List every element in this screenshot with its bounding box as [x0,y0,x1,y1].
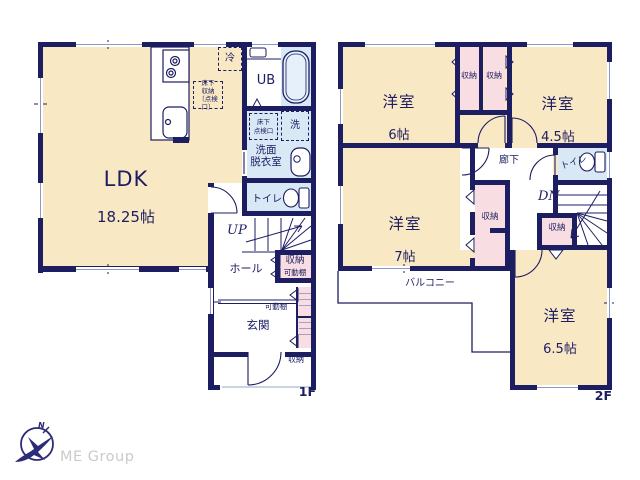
wall-segment [298,316,311,318]
window [76,267,139,272]
wall-segment [275,278,316,283]
staircase-1f [242,218,311,252]
window [607,288,612,318]
window [537,385,578,390]
balcony-label: バルコニー [396,278,464,289]
stairs-down-label: DN [538,190,560,205]
wall-segment [537,213,577,218]
stairs-up-label: UP [227,224,247,239]
wall-segment [505,180,510,266]
shoe-storage-label: 収納 [283,356,309,365]
wall-segment [242,178,316,183]
room-label-hall: ホール [224,263,268,275]
window [38,183,43,218]
wall-segment [242,42,247,150]
room-label-entrance: 玄関 [238,319,278,332]
underfloor-hatch-box: 床下 点検口 [249,113,278,140]
wall-segment [505,143,512,148]
shoe-shelf-lines [299,294,311,335]
wall-segment [470,180,510,185]
closet-b-label: 収納 [481,72,507,81]
wall-segment [311,42,316,390]
wall-segment [338,42,343,271]
stair-storage-label: 収納 [279,256,311,267]
wall-segment [553,180,612,185]
wall-segment [470,258,475,266]
wall-segment [490,228,510,233]
stair-storage-shelf-label: 可動棚 [279,269,311,277]
room7-name: 洋室 [374,216,436,233]
wall-segment [460,143,478,148]
ldk-name: LDK [70,168,182,192]
room-label-45: 洋室 4.5帖 [522,78,594,164]
room65-size: 6.5帖 [524,343,596,358]
compass-north-label: N [38,422,45,431]
wall-segment [507,47,512,143]
wall-segment [208,385,220,390]
compass-bird-logo-icon [15,427,53,462]
room7-size: 7帖 [374,251,436,266]
room45-size: 4.5帖 [522,131,594,146]
room65-name: 洋室 [524,308,596,325]
wall-segment [242,211,316,216]
corridor-label: 廊下 [490,155,528,166]
wall-segment [537,245,612,250]
wall-segment [38,42,43,273]
window [38,78,43,133]
window [179,267,206,272]
wall-segment [213,352,248,357]
kitchen-counter-icon [151,47,189,143]
room-label-unitbath: UB [250,74,282,89]
window [208,288,213,314]
staircase-2f [558,191,607,245]
room-label-toilet1f: トイレ [248,194,286,205]
closet-a-label: 収納 [456,72,482,81]
window [527,42,573,47]
window [607,62,612,99]
window [338,186,343,224]
room45-name: 洋室 [522,96,594,113]
window [76,42,142,47]
room6-size: 6帖 [368,129,430,144]
room-label-7: 洋室 7帖 [374,198,436,284]
window [252,42,278,47]
refrigerator-box: 冷 [218,47,242,71]
room6-name: 洋室 [368,94,430,111]
room-label-65: 洋室 6.5帖 [524,290,596,376]
floor-plan: LDK 18.25帖 冷 床下 収納 〔点検口〕 UB 床下 点検口 洗 洗面 … [0,0,640,480]
window [365,42,435,47]
wall-segment [455,110,512,115]
closet-tall-label: 収納 [474,213,506,223]
floor2-label: 2F [590,389,612,403]
ldk-size: 18.25帖 [70,209,182,226]
washer-box: 洗 [281,111,309,141]
floor1-label: 1F [294,385,316,399]
wall-segment [208,183,214,187]
window [607,152,612,178]
wall-segment [455,47,460,148]
room-label-ldk: LDK 18.25帖 [70,150,182,244]
wall-segment [510,250,515,390]
washbasin-icon [291,148,310,176]
entrance-shelf-label: 可動棚 [259,303,293,311]
closet-small-label: 収納 [542,224,572,234]
underfloor-storage-box: 床下 収納 〔点検口〕 [193,81,223,109]
room-label-6: 洋室 6帖 [368,76,430,162]
window [338,89,343,124]
company-logo-text: ME Group [60,449,134,465]
toilet-1f-icon [284,188,310,208]
room-label-washroom: 洗面 脱衣室 [243,145,289,169]
